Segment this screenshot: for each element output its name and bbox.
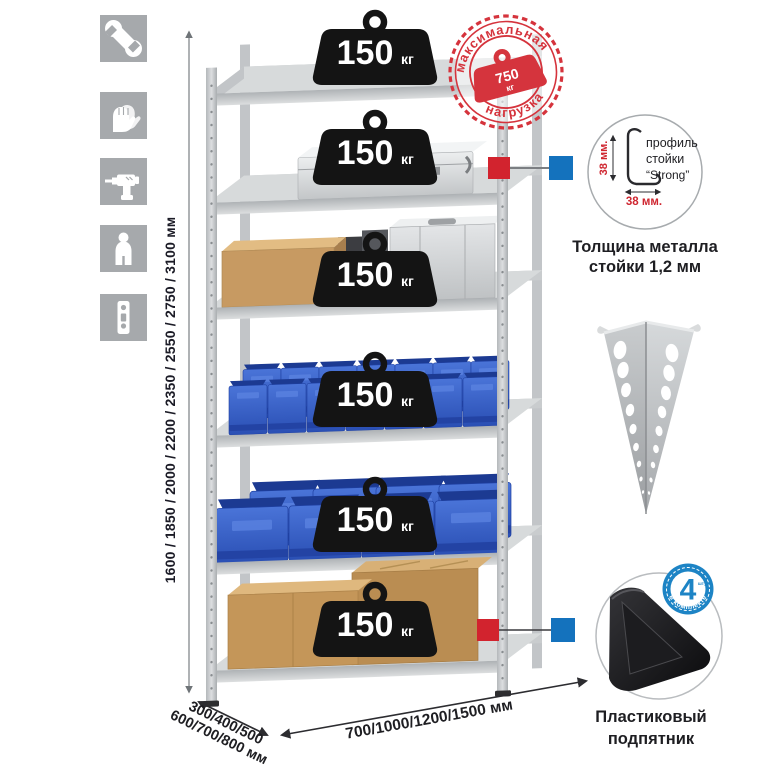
included-count-value: 4 [680,574,697,607]
callout-marker-blue-bottom [551,618,575,642]
rack-rear-right-post [532,34,542,668]
feature-icons-column [100,15,147,341]
profile-label-line1: профиль [646,136,698,150]
plastic-foot-caption-line1: Пластиковый [595,708,706,726]
profile-label-line3: “Strong” [646,168,689,182]
callout-marker-blue-top [549,156,573,180]
rack-front-right-post [497,57,508,691]
product-infographic: 150 кг [0,0,765,765]
included-count-small-label: штуки [698,581,712,586]
person-icon [100,225,147,272]
callout-marker-red-top [488,157,510,179]
max-load-stamp: максимальная нагрузка 750 кг [437,3,574,140]
gloves-icon [100,92,147,139]
post-profile-detail: 38 мм. 38 мм. профиль стойки “Strong” [588,115,702,229]
shelf-load-badge [313,13,437,85]
metal-thickness-caption-line1: Толщина металла [572,238,718,256]
perforated-profile-icon [100,294,147,341]
included-count-badge: 4 штуки в комплекте [663,564,714,615]
shelf-load-badge [313,113,437,185]
plastic-foot-caption-line2: подпятник [608,730,695,748]
infographic-canvas: 150 кг [0,0,765,765]
depth-dimension: 300/400/500 600/700/800 мм [168,693,277,765]
width-dimension: 700/1000/1200/1500 мм [282,681,586,743]
callout-marker-red-bottom [477,619,499,641]
height-dimension-label: 1600 / 1850 / 2000 / 2200 / 2350 / 2550 … [162,217,178,584]
profile-dim-vertical: 38 мм. [598,141,610,176]
corner-post-image [597,322,701,514]
rack-front-left-post [206,68,217,702]
profile-label-line2: стойки [646,152,684,166]
plastic-foot-detail: 4 штуки в комплекте [596,564,722,700]
height-dimension: 1600 / 1850 / 2000 / 2200 / 2350 / 2550 … [162,32,189,692]
profile-dim-horizontal: 38 мм. [626,196,662,208]
wrench-icon [100,15,147,62]
profile-callout [488,156,573,180]
metal-thickness-caption-line2: стойки 1,2 мм [589,258,701,276]
drill-icon [100,158,147,205]
